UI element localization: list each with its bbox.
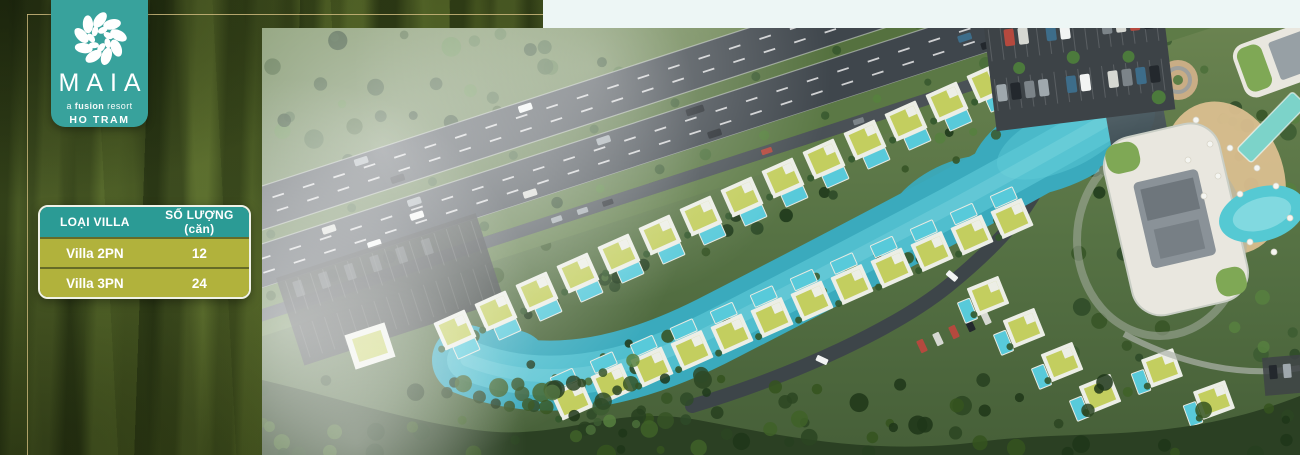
header-villa-type: LOẠI VILLA [40, 215, 150, 229]
villa-type-cell: Villa 3PN [40, 276, 150, 291]
flower-swirl-logo-icon [69, 8, 131, 66]
villa-quantity-cell: 12 [150, 246, 249, 261]
villa-count-table: LOẠI VILLA SỐ LƯỢNG (căn) Villa 2PN 12 V… [38, 205, 251, 299]
tagline-bold: fusion [75, 101, 104, 111]
masterplan-aerial-render [262, 28, 1300, 455]
top-banner-strip [543, 0, 1300, 28]
header-villa-quantity: SỐ LƯỢNG (căn) [150, 208, 249, 236]
haze-overlay [262, 28, 1300, 455]
villa-table-header: LOẠI VILLA SỐ LƯỢNG (căn) [40, 207, 249, 237]
brand-badge: MAIA a fusion resort HO TRAM [51, 0, 148, 127]
brand-location: HO TRAM [51, 114, 148, 126]
villa-type-cell: Villa 2PN [40, 246, 150, 261]
tagline-suffix: resort [104, 101, 132, 111]
brand-name: MAIA [58, 69, 148, 98]
brand-tagline: a fusion resort [51, 101, 148, 111]
resort-masterplan-banner: MAIA a fusion resort HO TRAM LOẠI VILLA … [0, 0, 1300, 455]
table-row-villa-3pn: Villa 3PN 24 [40, 267, 249, 297]
villa-quantity-cell: 24 [150, 276, 249, 291]
table-row-villa-2pn: Villa 2PN 12 [40, 237, 249, 267]
gold-border-line-vertical [27, 14, 28, 455]
tagline-prefix: a [66, 101, 74, 111]
